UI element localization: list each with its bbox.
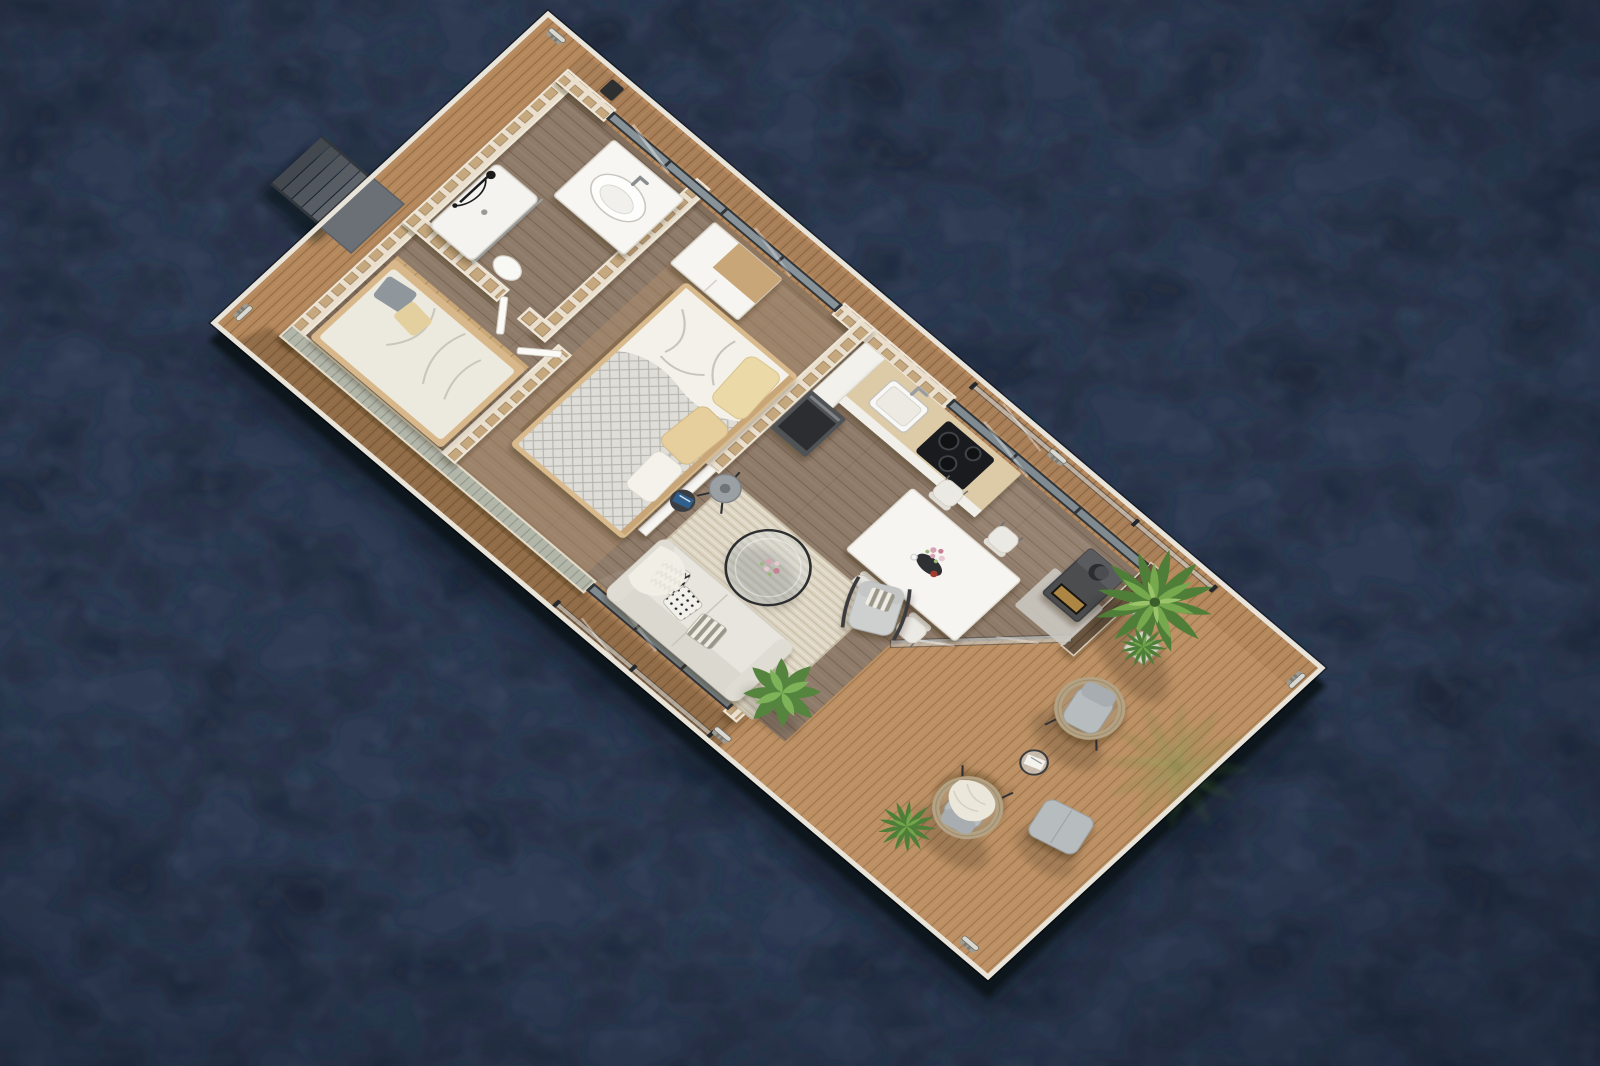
houseboat-render (0, 0, 1600, 1066)
scene-canvas (0, 0, 1600, 1066)
